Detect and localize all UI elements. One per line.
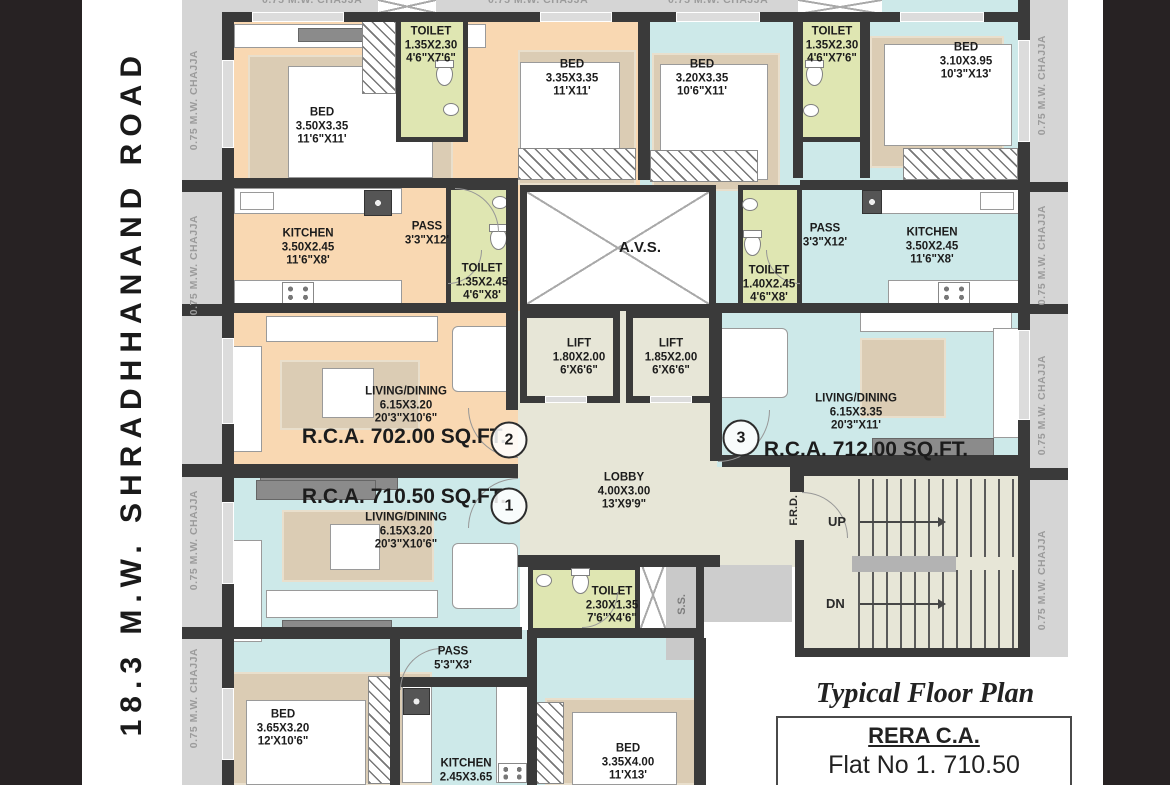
wall <box>222 464 518 478</box>
room-label-living2: LIVING/DINING6.15X3.3520'3"X11' <box>815 393 897 434</box>
sofa <box>266 316 438 342</box>
wall <box>1030 182 1068 192</box>
washer <box>862 190 882 214</box>
wardrobe <box>368 676 392 784</box>
wall <box>527 630 537 785</box>
lift-door <box>650 396 692 403</box>
room-label-bed3: BED3.20X3.3510'6"X11' <box>676 59 728 100</box>
wall <box>222 178 514 188</box>
dining-table <box>452 543 518 609</box>
wall <box>222 303 518 313</box>
rera-heading: RERA C.A. <box>778 723 1070 749</box>
rera-box: RERA C.A. Flat No 1. 710.50 Flat No 2. 7… <box>776 716 1072 785</box>
flat2-number: 2 <box>491 422 528 459</box>
wall <box>800 180 1030 190</box>
room-label-pass1: PASS3'3"X12' <box>405 220 449 247</box>
chajja-label: 0.75 M.W. CHAJJA <box>1036 205 1048 305</box>
chajja-label: 0.75 M.W. CHAJJA <box>668 0 768 6</box>
wardrobe <box>903 148 1018 180</box>
chajja-label: 0.75 M.W. CHAJJA <box>1036 355 1048 455</box>
rera-flat1: Flat No 1. 710.50 <box>778 751 1070 780</box>
room-label-bed6: BED3.35X4.0011'X13' <box>602 743 654 784</box>
window <box>252 12 344 22</box>
basin-fixture <box>443 103 459 116</box>
sofa <box>860 310 1012 332</box>
room-label-pass2: PASS3'3"X12' <box>803 222 847 249</box>
wall <box>638 12 650 180</box>
window <box>1018 40 1030 142</box>
road-strip: 18.3 M.W. SHRADHHANAND ROAD <box>82 0 182 785</box>
room-label-living3: LIVING/DINING6.15X3.2020'3"X10'6" <box>365 512 447 553</box>
right-black-band <box>1103 0 1170 785</box>
window <box>540 12 612 22</box>
duct-x <box>640 560 666 630</box>
washer <box>403 688 430 715</box>
frd-label: F.R.D. <box>788 495 800 526</box>
stove <box>498 763 527 783</box>
stair-flight-dn <box>858 570 1018 648</box>
wall <box>390 639 400 785</box>
avs-shaft <box>520 185 716 311</box>
chajja-label: 0.75 M.W. CHAJJA <box>188 490 200 590</box>
chajja-label: 0.75 M.W. CHAJJA <box>1036 530 1048 630</box>
room-label-avs: A.V.S. <box>619 239 661 257</box>
room-label-lift2: LIFT1.85X2.006'X6'6" <box>645 338 697 379</box>
wardrobe <box>518 148 636 180</box>
room-label-kitchen2: KITCHEN3.50X2.4511'6"X8' <box>906 227 958 268</box>
wall <box>182 180 222 192</box>
road-label: 18.3 M.W. SHRADHHANAND ROAD <box>115 49 149 736</box>
room-label-toilet4: TOILET1.40X2.454'6"X8' <box>743 265 795 306</box>
room-label-toilet2: TOILET1.35X2.304'6"X7'6" <box>806 26 858 67</box>
window <box>222 688 234 760</box>
dn-arrow <box>860 603 940 605</box>
room-label-toilet3: TOILET1.35X2.454'6"X8' <box>456 263 508 304</box>
wardrobe <box>362 18 396 94</box>
room-label-pass3: PASS5'3"X3' <box>434 645 472 672</box>
rca-flat1: R.C.A. 710.50 SQ.FT. <box>302 485 506 509</box>
chajja-label: 0.75 M.W. CHAJJA <box>262 0 362 6</box>
wall <box>1030 304 1068 314</box>
room-label-kitchen3: KITCHEN2.45X3.65 <box>440 757 492 784</box>
ss-label: S.S. <box>676 594 688 615</box>
room-label-bed4: BED3.10X3.9510'3"X13' <box>940 42 992 83</box>
chajja-label: 0.75 M.W. CHAJJA <box>188 215 200 315</box>
chajja-label: 0.75 M.W. CHAJJA <box>188 648 200 748</box>
basin-fixture <box>803 104 819 117</box>
room-label-bed5: BED3.65X3.2012'X10'6" <box>257 709 309 750</box>
window <box>222 60 234 148</box>
wall <box>528 628 700 638</box>
left-black-band <box>0 0 82 785</box>
lift-door <box>545 396 587 403</box>
room-label-kitchen1: KITCHEN3.50X2.4511'6"X8' <box>282 228 334 269</box>
window <box>1018 330 1030 420</box>
room-label-toilet1: TOILET1.35X2.304'6"X7'6" <box>405 26 457 67</box>
wall <box>518 555 720 567</box>
flat3-number: 3 <box>723 420 760 457</box>
room-label-lobby: LOBBY4.00X3.0013'X9'9" <box>598 472 650 513</box>
up-arrowhead <box>938 517 946 527</box>
wardrobe <box>650 150 758 182</box>
chajja-label: 0.75 M.W. CHAJJA <box>188 50 200 150</box>
dining-table <box>716 328 788 398</box>
sink <box>980 192 1014 210</box>
service-slab <box>700 565 792 622</box>
floor-plan-page: 18.3 M.W. SHRADHHANAND ROAD 0.75 M.W. CH… <box>0 0 1170 785</box>
page-title: Typical Floor Plan <box>816 678 1034 710</box>
stove <box>282 282 314 304</box>
window <box>676 12 760 22</box>
sofa <box>266 590 438 618</box>
up-arrow <box>860 521 940 523</box>
stair-landing <box>852 556 956 572</box>
stove <box>938 282 970 304</box>
wall <box>694 638 706 785</box>
basin-fixture <box>742 198 758 211</box>
dn-label: DN <box>826 596 845 611</box>
chajja-label: 0.75 M.W. CHAJJA <box>1036 35 1048 135</box>
rca-flat2: R.C.A. 702.00 SQ.FT. <box>302 425 506 449</box>
stair-corridor <box>707 467 795 567</box>
wall <box>222 627 522 639</box>
room-label-lift1: LIFT1.80X2.006'X6'6" <box>553 338 605 379</box>
wall <box>860 12 870 178</box>
wall <box>1030 468 1068 480</box>
wardrobe <box>536 702 564 784</box>
wall <box>790 460 800 492</box>
basin-fixture <box>536 574 552 587</box>
rca-flat3: R.C.A. 712.00 SQ.FT. <box>764 438 968 462</box>
sink <box>240 192 274 210</box>
washer <box>364 190 392 216</box>
window <box>222 338 234 424</box>
room-label-toilet5: TOILET2.30X1.357'6"X4'6" <box>586 586 638 627</box>
window <box>900 12 984 22</box>
room-label-bed1: BED3.50X3.3511'6"X11' <box>296 107 348 148</box>
flat1-number: 1 <box>491 488 528 525</box>
up-label: UP <box>828 514 846 529</box>
wall <box>182 627 222 639</box>
room-label-living1: LIVING/DINING6.15X3.2020'3"X10'6" <box>365 386 447 427</box>
wall <box>793 12 803 178</box>
dn-arrowhead <box>938 599 946 609</box>
wall <box>182 464 222 477</box>
window <box>222 502 234 584</box>
chajja-label: 0.75 M.W. CHAJJA <box>488 0 588 6</box>
room-label-bed2: BED3.35X3.3511'X11' <box>546 59 598 100</box>
